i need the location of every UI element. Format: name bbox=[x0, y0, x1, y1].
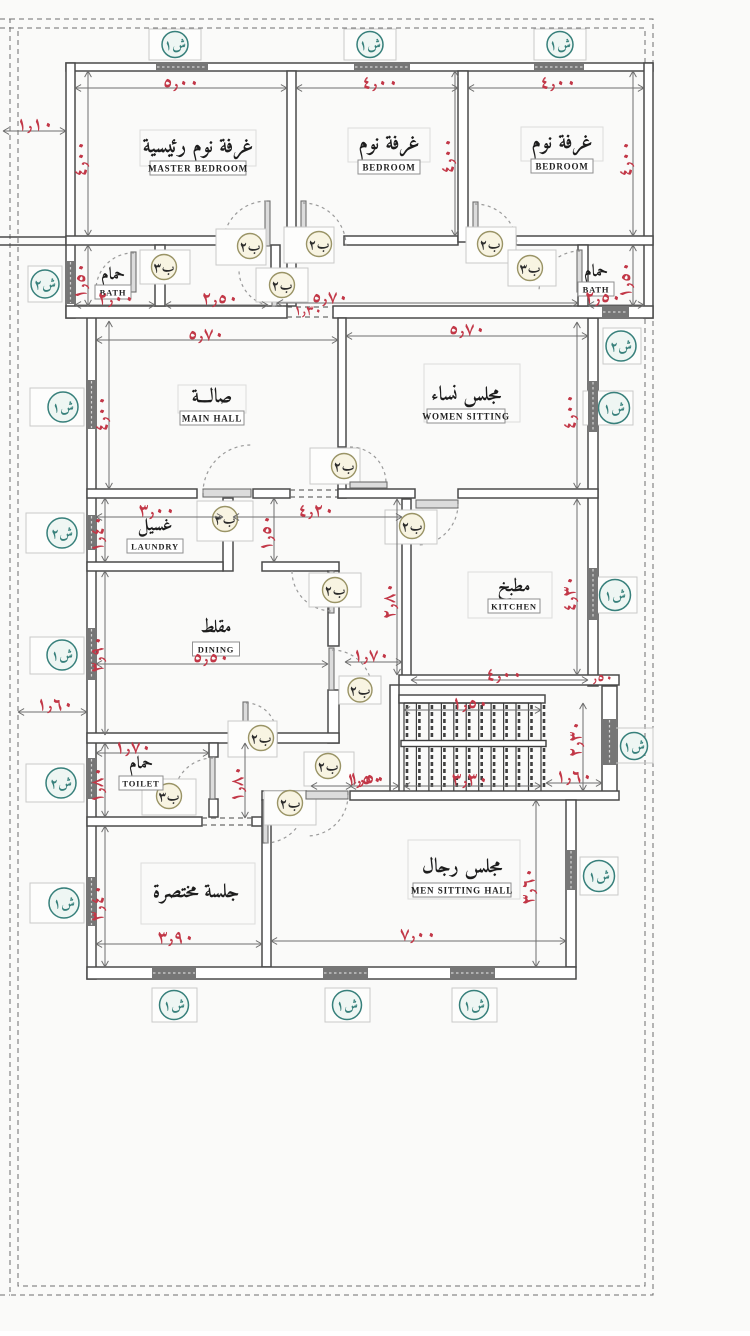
svg-text:٤٫٢٠: ٤٫٢٠ bbox=[298, 496, 335, 527]
svg-text:ش١: ش١ bbox=[52, 396, 74, 421]
svg-text:١٫٦٠: ١٫٦٠ bbox=[37, 690, 74, 721]
svg-text:٣٫٩٠: ٣٫٩٠ bbox=[158, 923, 195, 954]
svg-text:٥٫٥٠: ٥٫٥٠ bbox=[193, 643, 230, 674]
svg-text:جلسة مختصرة: جلسة مختصرة bbox=[153, 875, 239, 910]
svg-text:ش٢: ش٢ bbox=[610, 335, 632, 360]
svg-text:ب٢: ب٢ bbox=[239, 235, 260, 260]
svg-text:ب٢: ب٢ bbox=[279, 792, 300, 817]
svg-text:٤٫٣٠: ٤٫٣٠ bbox=[555, 576, 586, 613]
svg-text:مجلس نساء: مجلس نساء bbox=[431, 378, 502, 413]
svg-text:BEDROOM: BEDROOM bbox=[362, 161, 415, 177]
svg-text:ب٢: ب٢ bbox=[401, 515, 422, 540]
svg-text:٢٫٣٠: ٢٫٣٠ bbox=[561, 721, 592, 758]
svg-text:ب٢: ب٢ bbox=[250, 727, 271, 752]
svg-text:ش١: ش١ bbox=[604, 584, 626, 609]
svg-text:KITCHEN: KITCHEN bbox=[491, 601, 537, 616]
svg-text:٥٫٧٠: ٥٫٧٠ bbox=[188, 320, 225, 351]
svg-text:٤٫٠٠: ٤٫٠٠ bbox=[362, 68, 399, 99]
svg-text:٢٫٠٠: ٢٫٠٠ bbox=[98, 284, 135, 315]
svg-text:ش١: ش١ bbox=[336, 994, 358, 1019]
svg-text:مقلط: مقلط bbox=[201, 613, 232, 644]
svg-text:MAIN HALL: MAIN HALL bbox=[182, 412, 242, 428]
svg-text:ش١: ش١ bbox=[549, 33, 571, 58]
svg-text:ش١: ش١ bbox=[359, 33, 381, 58]
svg-text:صالـــة: صالـــة bbox=[192, 380, 233, 415]
svg-text:ش٢: ش٢ bbox=[34, 273, 56, 298]
svg-text:٤٫٠٠: ٤٫٠٠ bbox=[87, 396, 118, 433]
svg-text:١٫٨٠: ١٫٨٠ bbox=[223, 766, 254, 803]
svg-text:٣٫٣٠: ٣٫٣٠ bbox=[452, 765, 489, 796]
svg-text:٢٫٥٠: ٢٫٥٠ bbox=[202, 284, 239, 315]
svg-text:ش١: ش١ bbox=[463, 994, 485, 1019]
svg-text:١٫٧٠: ١٫٧٠ bbox=[115, 733, 152, 764]
svg-text:مطبخ: مطبخ bbox=[498, 572, 531, 603]
svg-text:٣٫٦٠: ٣٫٦٠ bbox=[514, 868, 545, 905]
svg-text:MASTER BEDROOM: MASTER BEDROOM bbox=[148, 162, 248, 178]
svg-text:١٫٥٠: ١٫٥٠ bbox=[452, 689, 489, 720]
svg-text:٣٫٠٠: ٣٫٠٠ bbox=[139, 496, 176, 527]
svg-text:٫٥٠: ٫٥٠ bbox=[593, 665, 614, 690]
svg-text:ش١: ش١ bbox=[164, 33, 186, 58]
svg-text:٧٫٠٠: ٧٫٠٠ bbox=[400, 920, 437, 951]
svg-text:١٫٧٠: ١٫٧٠ bbox=[353, 641, 390, 672]
svg-text:١٫٦٠: ١٫٦٠ bbox=[556, 762, 593, 793]
svg-text:٥٫٠٠: ٥٫٠٠ bbox=[163, 68, 200, 99]
svg-text:٤٫٠٠: ٤٫٠٠ bbox=[486, 660, 523, 691]
svg-text:٤٫٠٠: ٤٫٠٠ bbox=[66, 141, 97, 178]
svg-text:TOILET: TOILET bbox=[122, 778, 159, 793]
svg-text:ب٢: ب٢ bbox=[308, 233, 329, 258]
svg-text:٤٫٠٠: ٤٫٠٠ bbox=[555, 394, 586, 431]
svg-text:ش١: ش١ bbox=[53, 892, 75, 917]
svg-text:غرفة نوم: غرفة نوم bbox=[532, 125, 593, 162]
svg-text:غرفة نوم رئيسية: غرفة نوم رئيسية bbox=[143, 129, 254, 166]
svg-text:ش١: ش١ bbox=[163, 994, 185, 1019]
svg-text:ش٢: ش٢ bbox=[51, 522, 73, 547]
svg-text:١٫٥٠: ١٫٥٠ bbox=[66, 263, 97, 300]
svg-text:٣٫٩٠: ٣٫٩٠ bbox=[83, 636, 114, 673]
svg-text:٤٫٠٠: ٤٫٠٠ bbox=[611, 141, 642, 178]
svg-text:٤٫٠٠: ٤٫٠٠ bbox=[433, 138, 464, 175]
svg-text:BEDROOM: BEDROOM bbox=[535, 160, 588, 176]
svg-text:ش١: ش١ bbox=[51, 644, 73, 669]
svg-text:١٫٥٠: ١٫٥٠ bbox=[349, 764, 386, 795]
svg-text:ش٢: ش٢ bbox=[50, 772, 72, 797]
svg-text:ش١: ش١ bbox=[603, 397, 625, 422]
svg-text:ب٢: ب٢ bbox=[333, 455, 354, 480]
svg-text:مجلس رجال: مجلس رجال bbox=[422, 850, 503, 885]
svg-text:١٫٤٠: ١٫٤٠ bbox=[83, 516, 114, 553]
svg-text:٢٫٥٠: ٢٫٥٠ bbox=[585, 283, 622, 314]
svg-text:ش١: ش١ bbox=[623, 735, 645, 760]
svg-text:WOMEN SITTING: WOMEN SITTING bbox=[422, 410, 510, 426]
svg-text:MEN SITTING HALL: MEN SITTING HALL bbox=[411, 884, 513, 900]
svg-text:١٫٣٠: ١٫٣٠ bbox=[294, 298, 323, 323]
svg-text:ش١: ش١ bbox=[588, 865, 610, 890]
svg-text:٤٫٠٠: ٤٫٠٠ bbox=[540, 68, 577, 99]
svg-text:ب٢: ب٢ bbox=[349, 679, 370, 704]
svg-text:١٫١٠: ١٫١٠ bbox=[17, 110, 54, 141]
svg-text:ب٣: ب٣ bbox=[153, 256, 174, 281]
svg-text:ب٢: ب٢ bbox=[324, 579, 345, 604]
svg-text:٢٫٨٠: ٢٫٨٠ bbox=[375, 583, 406, 620]
svg-text:١٫٥٠: ١٫٥٠ bbox=[252, 515, 283, 552]
svg-text:٣٫٤٠: ٣٫٤٠ bbox=[83, 885, 114, 922]
svg-text:غرفة نوم: غرفة نوم bbox=[359, 126, 420, 163]
svg-text:ب٢: ب٢ bbox=[271, 274, 292, 299]
svg-text:ب٢: ب٢ bbox=[317, 755, 338, 780]
svg-text:١٫٨٠: ١٫٨٠ bbox=[83, 767, 114, 804]
svg-text:LAUNDRY: LAUNDRY bbox=[131, 541, 179, 556]
svg-text:٥٫٧٠: ٥٫٧٠ bbox=[449, 315, 486, 346]
svg-text:ب٢: ب٢ bbox=[479, 233, 500, 258]
svg-text:ب٣: ب٣ bbox=[519, 257, 540, 282]
